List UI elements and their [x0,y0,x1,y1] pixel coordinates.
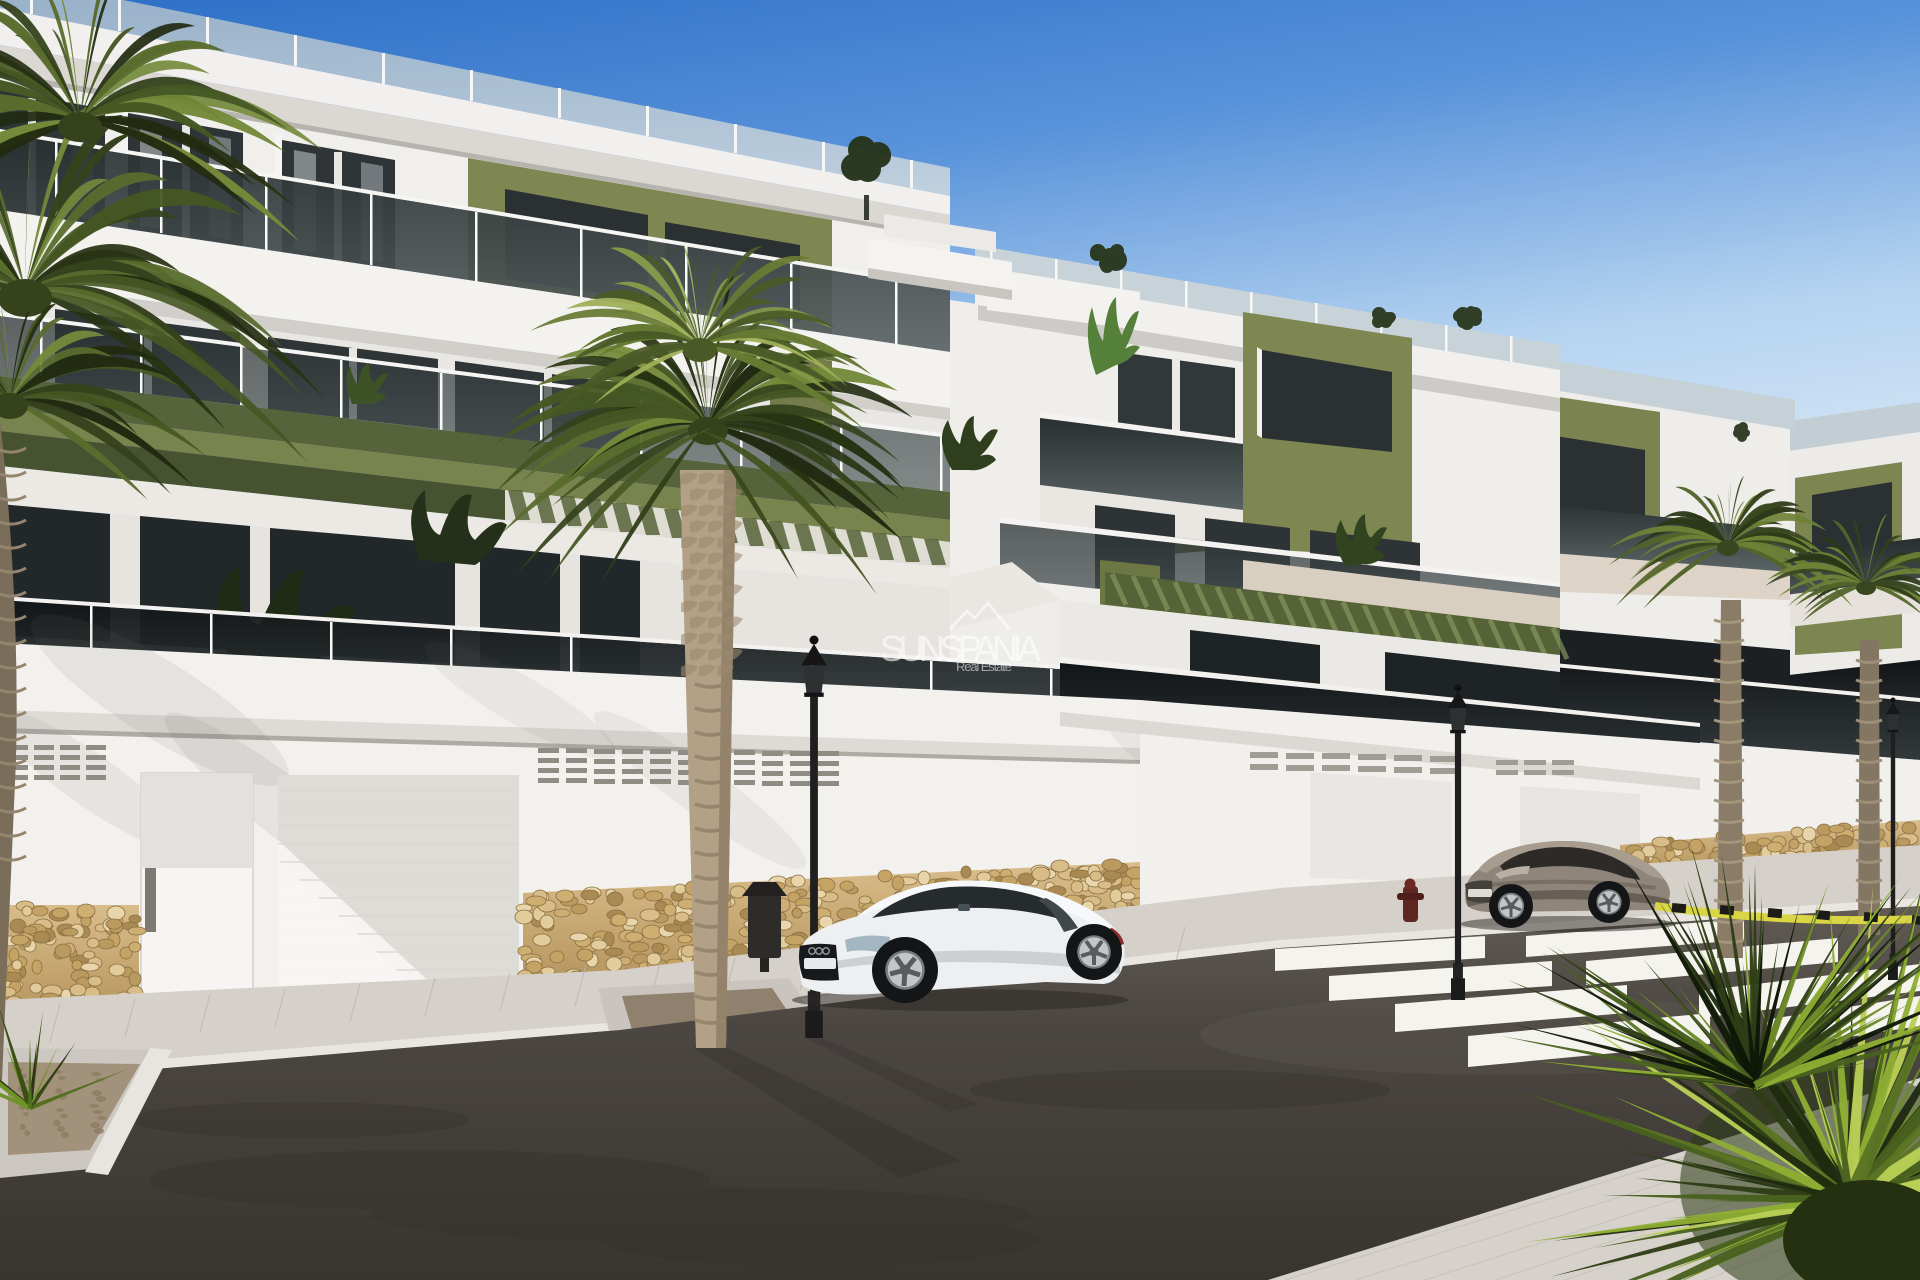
svg-text:Real Estate: Real Estate [956,659,1012,674]
